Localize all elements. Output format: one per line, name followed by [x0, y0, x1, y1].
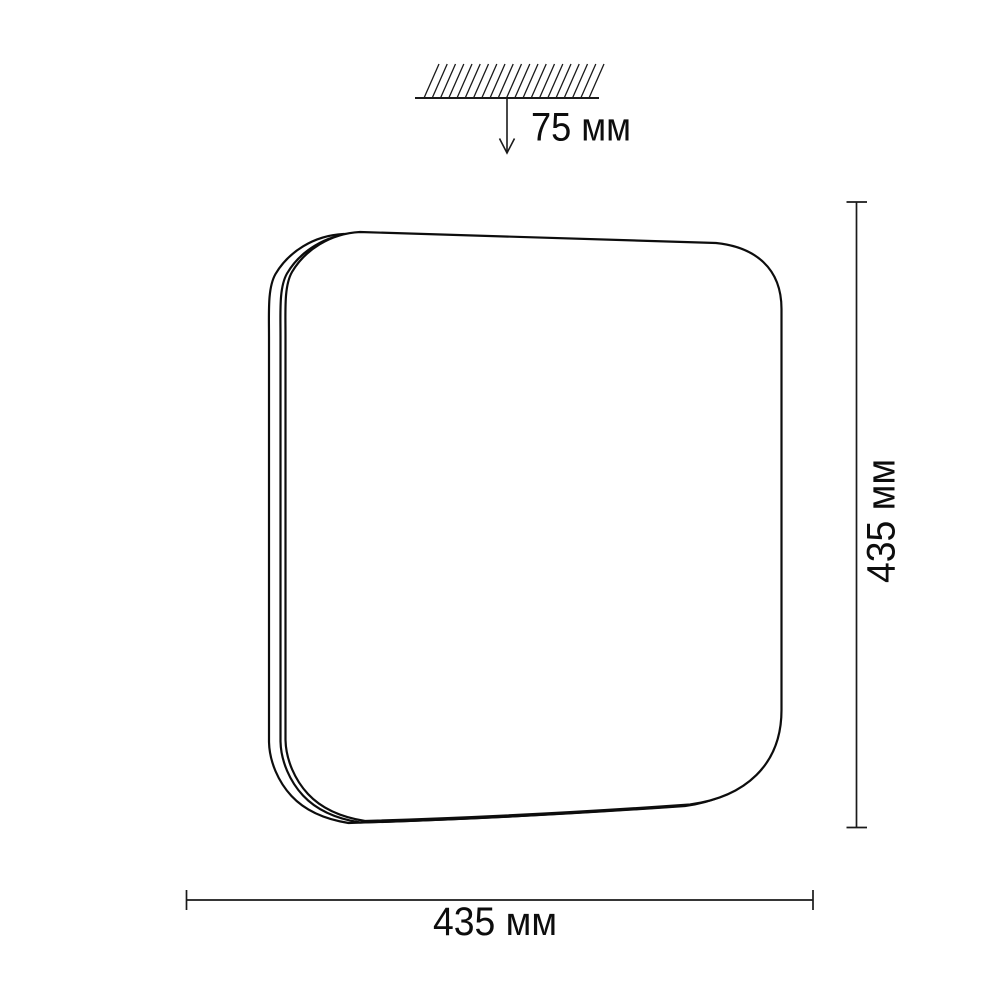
svg-text:435 мм: 435 мм: [433, 900, 557, 944]
svg-text:75 мм: 75 мм: [531, 106, 631, 150]
svg-text:435 мм: 435 мм: [860, 459, 904, 583]
